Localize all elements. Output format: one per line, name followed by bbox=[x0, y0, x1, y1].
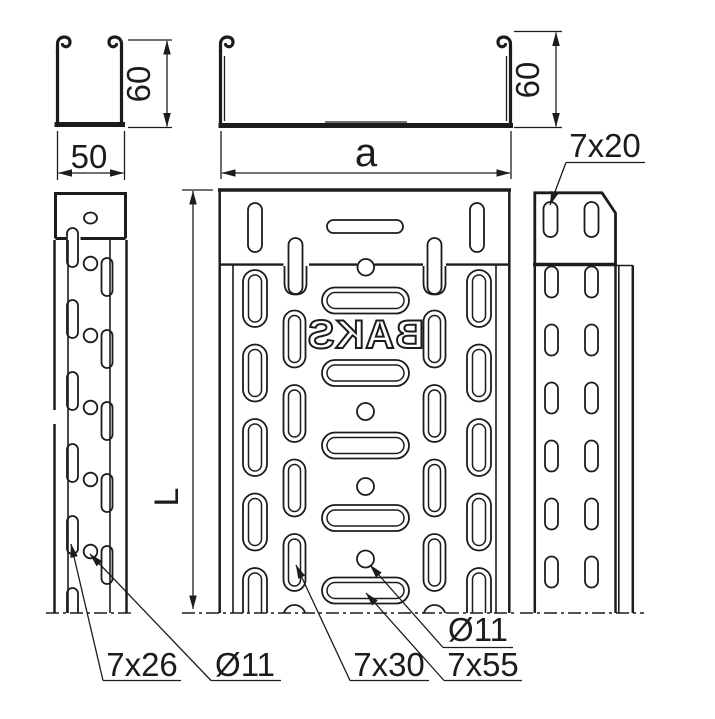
joint-hole-d11 bbox=[358, 259, 375, 276]
oval-column-inner-right bbox=[424, 311, 446, 663]
cable-tray-drawing: 50 60 a 60 bbox=[0, 0, 715, 719]
technical-drawing-page: 50 60 a 60 bbox=[0, 0, 715, 719]
plate-center-slot bbox=[327, 220, 403, 233]
joint-slot bbox=[428, 238, 442, 294]
oval-column-outer-right bbox=[467, 270, 491, 625]
side-view-right bbox=[533, 193, 633, 613]
slot-7x26 bbox=[102, 402, 113, 440]
dim-label-L: L bbox=[148, 488, 186, 507]
rolled-edge-hook bbox=[221, 37, 234, 52]
connector-plate bbox=[56, 194, 126, 239]
dim-label-a: a bbox=[355, 131, 378, 175]
rolled-edge-hook bbox=[109, 37, 122, 52]
dim-label-60: 60 bbox=[120, 66, 157, 103]
label-7x55-text: 7x55 bbox=[447, 646, 519, 683]
hole-d11 bbox=[84, 545, 98, 559]
section-view-wide bbox=[219, 37, 514, 126]
dim-label-60: 60 bbox=[509, 62, 546, 99]
side-slot-grid bbox=[545, 267, 598, 588]
label-7x20-text: 7x20 bbox=[569, 127, 641, 164]
plate-hole bbox=[84, 213, 97, 224]
slot-7x26 bbox=[102, 258, 113, 296]
dim-height-small: 60 bbox=[120, 40, 172, 128]
label-d11-text: Ø11 bbox=[215, 646, 275, 683]
label-d11-right-text: Ø11 bbox=[448, 611, 508, 648]
hole-d11 bbox=[84, 257, 98, 271]
hole-d11 bbox=[84, 401, 98, 415]
hole-d11 bbox=[357, 551, 374, 568]
oval-column-inner-left bbox=[284, 311, 306, 663]
label-7x26-text: 7x26 bbox=[106, 646, 178, 683]
dim-width-wide: a bbox=[221, 131, 511, 179]
slot-7x26 bbox=[102, 330, 113, 368]
dim-width-small: 50 bbox=[58, 131, 125, 180]
hole-d11 bbox=[84, 329, 98, 343]
dim-height-wide: 60 bbox=[509, 32, 562, 128]
dim-length-L: L bbox=[148, 190, 213, 609]
oval-column-outer-left bbox=[243, 270, 267, 625]
plan-view: BAKS bbox=[218, 189, 511, 663]
slot-7x26 bbox=[102, 546, 113, 584]
rolled-edge-hook bbox=[498, 37, 511, 52]
hole-d11 bbox=[357, 403, 374, 420]
joint-slot bbox=[289, 238, 303, 294]
slot-7x26 bbox=[102, 474, 113, 512]
hole-d11 bbox=[84, 473, 98, 487]
rolled-edge-hook bbox=[58, 37, 71, 52]
plate-slot bbox=[470, 203, 484, 252]
brand-text: BAKS bbox=[307, 313, 424, 357]
slot-7x20 bbox=[585, 202, 599, 237]
label-7x30-text: 7x30 bbox=[353, 646, 425, 683]
slot-7x20 bbox=[544, 202, 558, 237]
dim-label-50: 50 bbox=[71, 138, 108, 175]
hole-d11 bbox=[357, 478, 374, 495]
side-view-left bbox=[55, 194, 127, 627]
section-view-small bbox=[55, 37, 126, 125]
plate-slot bbox=[248, 203, 262, 252]
